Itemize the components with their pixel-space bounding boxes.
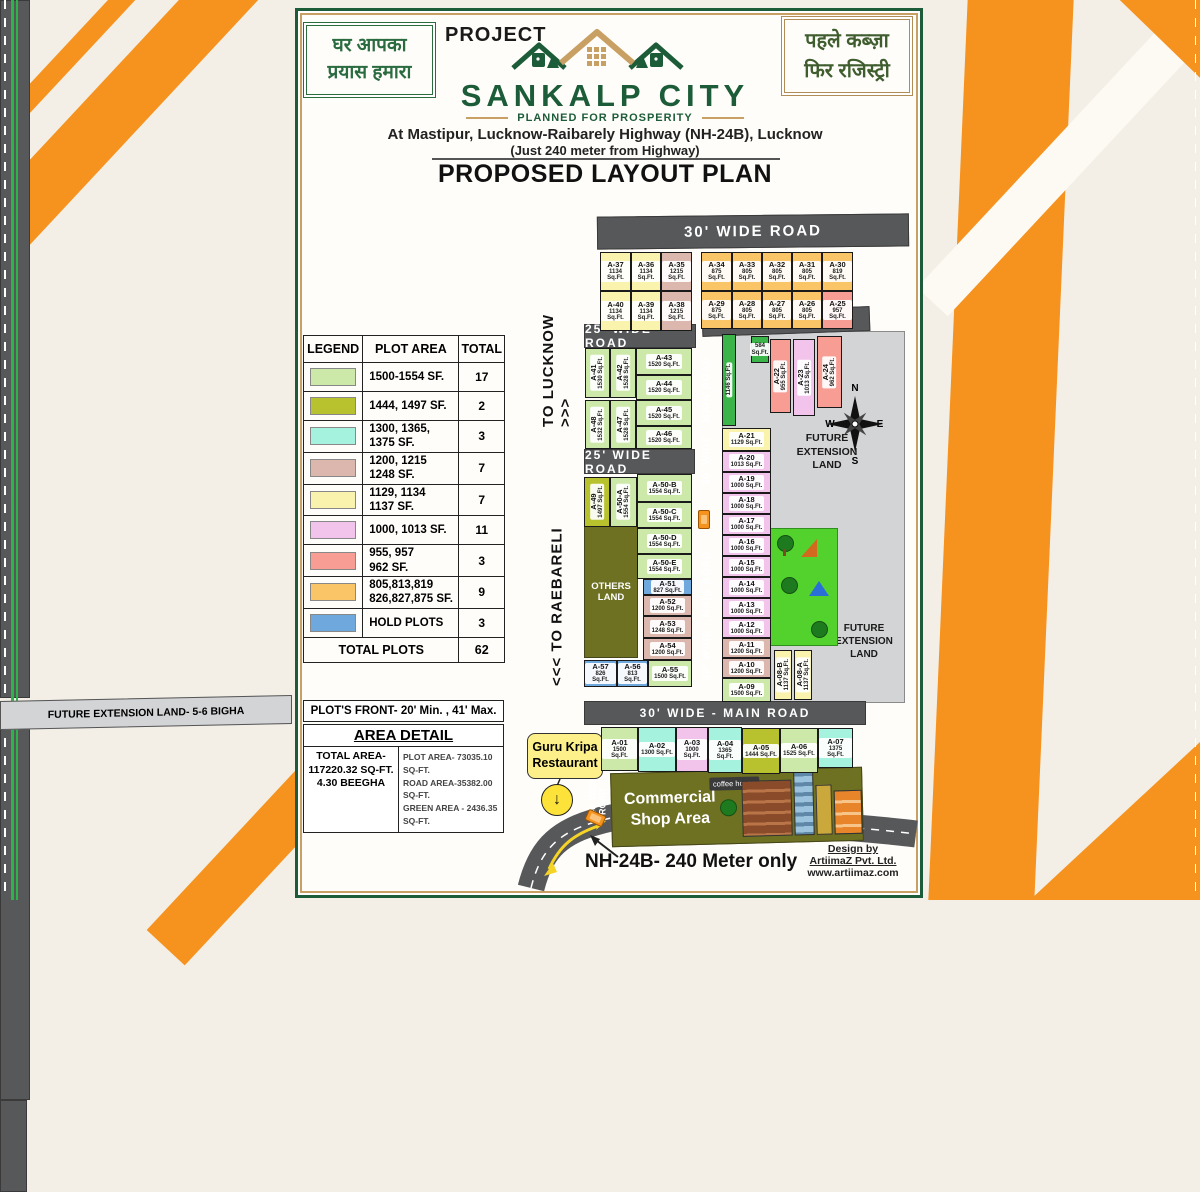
- plot-label: A-451520 Sq.Ft.: [646, 406, 682, 420]
- plot-label: A-29875 Sq.Ft.: [702, 300, 731, 320]
- plot-A-21: A-211129 Sq.Ft.: [722, 428, 771, 451]
- plot-A-43: A-431520 Sq.Ft.: [636, 348, 692, 375]
- plot-A-02: A-021300 Sq.Ft.: [638, 727, 676, 772]
- tree-icon: [781, 577, 798, 594]
- plot-A-47: A-471528 Sq.Ft.: [610, 400, 636, 449]
- median-line: [16, 0, 19, 900]
- median-line: [11, 0, 14, 900]
- plot-label: A-56813 Sq.Ft.: [618, 663, 647, 683]
- road-label: 25' WIDE ROAD: [584, 449, 695, 474]
- nh-distance-text: NH-24B- 240 Meter only: [585, 851, 797, 873]
- plot-label: A-231013 Sq.Ft.: [797, 360, 811, 396]
- plot-label: A-121000 Sq.Ft.: [729, 621, 765, 635]
- plot-A-50-C: A-50-C1554 Sq.Ft.: [637, 502, 692, 528]
- plot-A-38: A-381215 Sq.Ft.: [661, 291, 692, 331]
- plot-A-52: A-521200 Sq.Ft.: [643, 595, 692, 616]
- plot-A-50-E: A-50-E1554 Sq.Ft.: [637, 554, 692, 579]
- to-lucknow-label: TO LUCKNOW >>>: [547, 282, 567, 427]
- plot-label: A-201013 Sq.Ft.: [729, 454, 765, 468]
- car-window: [590, 813, 602, 822]
- plot-A-34: A-34875 Sq.Ft.: [701, 252, 732, 291]
- plot-A-16: A-161000 Sq.Ft.: [722, 535, 771, 556]
- plot-label: A-401134 Sq.Ft.: [601, 301, 630, 321]
- plot-A-03: A-031000 Sq.Ft.: [676, 727, 708, 772]
- plot-label: A-371134 Sq.Ft.: [601, 261, 630, 281]
- plot-label: A-431520 Sq.Ft.: [646, 354, 682, 368]
- plot-A-32: A-32805 Sq.Ft.: [762, 252, 792, 291]
- tree-icon: [811, 621, 828, 638]
- location-marker-icon: ↓: [541, 784, 573, 816]
- plot-label: A-061525 Sq.Ft.: [781, 743, 817, 757]
- plot-label: A-24962 Sq.Ft.: [822, 356, 836, 388]
- plot-label: A-361134 Sq.Ft.: [632, 261, 660, 281]
- plot-label: A-021300 Sq.Ft.: [639, 742, 675, 756]
- plot-label: A-071375 Sq.Ft.: [819, 738, 852, 758]
- plot-A-45: A-451520 Sq.Ft.: [636, 400, 692, 426]
- plot-A-08-B: A-08-B1137 Sq.Ft.: [774, 650, 792, 700]
- plot-A-28: A-28805 Sq.Ft.: [732, 291, 762, 329]
- plot-A-42: A-421528 Sq.Ft.: [610, 348, 636, 398]
- plot-label: A-171000 Sq.Ft.: [729, 517, 765, 531]
- plot-A-15: A-151000 Sq.Ft.: [722, 556, 771, 577]
- plot-A-07: A-071375 Sq.Ft.: [818, 728, 853, 768]
- plot-label: A-481532 Sq.Ft.: [590, 407, 604, 443]
- building-icon: [834, 790, 863, 835]
- plot-A-01: A-011500 Sq.Ft.: [601, 727, 638, 771]
- building-icon: [793, 765, 815, 835]
- plot-label: A-28805 Sq.Ft.: [733, 300, 761, 320]
- plot-label: A-50-D1554 Sq.Ft.: [647, 534, 683, 548]
- plot-A-24: A-24962 Sq.Ft.: [817, 336, 842, 408]
- plot-label: A-421528 Sq.Ft.: [616, 355, 630, 391]
- plot-label: A-441520 Sq.Ft.: [646, 380, 682, 394]
- plot-label: A-161000 Sq.Ft.: [729, 538, 765, 552]
- plot-A-22: A-22955 Sq.Ft.: [770, 339, 791, 413]
- plot-label: A-041365 Sq.Ft.: [709, 740, 741, 760]
- plot-label: A-491497 Sq.Ft.: [590, 484, 604, 520]
- plot-label: A-531248 Sq.Ft.: [650, 620, 686, 634]
- plot-A-25: A-25957 Sq.Ft.: [822, 291, 853, 329]
- green-area-plot: 584 Sq.Ft.: [751, 336, 769, 363]
- plot-label: A-101200 Sq.Ft.: [729, 661, 765, 675]
- plot-label: A-211129 Sq.Ft.: [729, 432, 764, 446]
- slide-icon: [801, 539, 817, 557]
- lane-line: [1195, 0, 1197, 900]
- commercial-label: Commercial Shop Area: [620, 787, 721, 831]
- plot-label: A-50-C1554 Sq.Ft.: [647, 508, 683, 522]
- credit-line-2: ArtiimaZ Pvt. Ltd.: [796, 855, 910, 867]
- plot-A-44: A-441520 Sq.Ft.: [636, 375, 692, 400]
- plot-label: A-51827 Sq.Ft.: [651, 580, 683, 594]
- plot-A-50-A: A-50-A1554 Sq.Ft.: [610, 477, 637, 527]
- plot-A-18: A-181000 Sq.Ft.: [722, 493, 771, 514]
- plot-A-09: A-091500 Sq.Ft.: [722, 678, 771, 702]
- layout-map: TO LUCKNOW >>> <<< TO RAEBARELI FUTURE E…: [0, 0, 1200, 900]
- plot-label: A-031000 Sq.Ft.: [677, 739, 707, 759]
- park-area: [770, 528, 838, 646]
- compass-s: S: [852, 456, 859, 466]
- plot-A-46: A-461520 Sq.Ft.: [636, 426, 692, 449]
- plot-A-10: A-101200 Sq.Ft.: [722, 658, 771, 678]
- plot-label: A-181000 Sq.Ft.: [729, 496, 765, 510]
- plot-label: A-22955 Sq.Ft.: [773, 360, 787, 392]
- plot-A-55: A-551500 Sq.Ft.: [648, 660, 692, 687]
- plot-A-14: A-141000 Sq.Ft.: [722, 577, 771, 598]
- plot-label: A-051444 Sq.Ft.: [743, 744, 779, 758]
- plot-label: A-34875 Sq.Ft.: [702, 261, 731, 281]
- plot-A-53: A-531248 Sq.Ft.: [643, 616, 692, 638]
- plot-A-08-A: A-08-A1137 Sq.Ft.: [794, 650, 812, 700]
- building-icon: [741, 780, 792, 837]
- plot-A-49: A-491497 Sq.Ft.: [584, 477, 610, 527]
- plot-A-35: A-351215 Sq.Ft.: [661, 252, 692, 291]
- plot-label: A-151000 Sq.Ft.: [729, 559, 765, 573]
- plot-A-37: A-371134 Sq.Ft.: [600, 252, 631, 291]
- plot-A-20: A-201013 Sq.Ft.: [722, 451, 771, 472]
- plot-A-33: A-33805 Sq.Ft.: [732, 252, 762, 291]
- lane-line: [4, 0, 6, 900]
- plot-label: A-25957 Sq.Ft.: [823, 300, 852, 320]
- plot-label: A-551500 Sq.Ft.: [652, 666, 688, 680]
- plot-A-12: A-121000 Sq.Ft.: [722, 618, 771, 638]
- plot-label: A-351215 Sq.Ft.: [662, 261, 691, 281]
- plot-label: A-391134 Sq.Ft.: [632, 301, 660, 321]
- plot-A-06: A-061525 Sq.Ft.: [780, 728, 818, 773]
- plot-label: A-541200 Sq.Ft.: [650, 642, 686, 656]
- commercial-shop-area: Commercial Shop Area coffee house: [610, 767, 864, 848]
- green-area-plot: 1146 Sq.Ft.: [722, 334, 736, 426]
- road-label: 30' WIDE - MAIN ROAD: [584, 701, 866, 725]
- plot-label: A-50-E1554 Sq.Ft.: [647, 559, 683, 573]
- plot-A-27: A-27805 Sq.Ft.: [762, 291, 792, 329]
- tree-icon: [720, 799, 737, 816]
- plot-A-48: A-481532 Sq.Ft.: [585, 400, 610, 449]
- plot-label: A-27805 Sq.Ft.: [763, 300, 791, 320]
- others-land-block: OTHERS LAND: [584, 526, 638, 658]
- tree-trunk: [783, 549, 786, 556]
- plot-label: 584 Sq.Ft.: [750, 343, 771, 356]
- restaurant-callout: Guru Kripa Restaurant: [527, 733, 603, 779]
- plot-label: A-50-B1554 Sq.Ft.: [647, 481, 683, 495]
- plot-label: A-08-A1137 Sq.Ft.: [796, 657, 810, 692]
- credit-line-3: www.artiimaz.com: [796, 867, 910, 879]
- plot-A-54: A-541200 Sq.Ft.: [643, 638, 692, 660]
- plot-label: A-26805 Sq.Ft.: [793, 300, 821, 320]
- plot-label: A-32805 Sq.Ft.: [763, 261, 791, 281]
- plot-A-56: A-56813 Sq.Ft.: [617, 660, 648, 687]
- plot-label: A-191000 Sq.Ft.: [729, 475, 765, 489]
- main-road-label: 30' WIDE - MAIN ROAD: [697, 540, 717, 690]
- plot-A-40: A-401134 Sq.Ft.: [600, 291, 631, 331]
- to-raebareli-label: <<< TO RAEBARELI: [547, 512, 567, 702]
- credit-line-1: Design by: [796, 843, 910, 855]
- plot-A-13: A-131000 Sq.Ft.: [722, 598, 771, 618]
- car-window: [701, 515, 707, 525]
- plot-label: A-50-A1554 Sq.Ft.: [616, 484, 630, 520]
- plot-A-05: A-051444 Sq.Ft.: [742, 728, 780, 774]
- plot-label: A-411530 Sq.Ft.: [590, 355, 604, 391]
- plot-A-57: A-57826 Sq.Ft.: [584, 660, 617, 687]
- plot-label: A-33805 Sq.Ft.: [733, 261, 761, 281]
- plot-A-51: A-51827 Sq.Ft.: [643, 579, 692, 595]
- entry-road: [0, 1100, 27, 1192]
- plot-A-50-B: A-50-B1554 Sq.Ft.: [637, 474, 692, 502]
- building-icon: [815, 785, 832, 835]
- plot-A-19: A-191000 Sq.Ft.: [722, 472, 771, 493]
- plot-A-36: A-361134 Sq.Ft.: [631, 252, 661, 291]
- compass-n: N: [851, 383, 858, 394]
- plot-A-50-D: A-50-D1554 Sq.Ft.: [637, 528, 692, 554]
- plot-label: A-57826 Sq.Ft.: [585, 663, 616, 683]
- plot-label: A-521200 Sq.Ft.: [650, 598, 686, 612]
- plot-label: A-08-B1137 Sq.Ft.: [776, 657, 790, 692]
- plot-label: A-30819 Sq.Ft.: [823, 261, 852, 281]
- plot-label: A-461520 Sq.Ft.: [646, 430, 682, 444]
- plot-label: A-141000 Sq.Ft.: [729, 580, 765, 594]
- plot-A-26: A-26805 Sq.Ft.: [792, 291, 822, 329]
- plot-A-41: A-411530 Sq.Ft.: [585, 348, 610, 398]
- plot-label: A-381215 Sq.Ft.: [662, 301, 691, 321]
- plot-A-39: A-391134 Sq.Ft.: [631, 291, 661, 331]
- plot-A-29: A-29875 Sq.Ft.: [701, 291, 732, 329]
- plot-A-30: A-30819 Sq.Ft.: [822, 252, 853, 291]
- plot-A-23: A-231013 Sq.Ft.: [793, 339, 815, 416]
- plot-label: A-011500 Sq.Ft.: [602, 739, 637, 759]
- plot-label: A-31805 Sq.Ft.: [793, 261, 821, 281]
- plot-A-17: A-171000 Sq.Ft.: [722, 514, 771, 535]
- plot-A-04: A-041365 Sq.Ft.: [708, 727, 742, 773]
- plot-A-11: A-111200 Sq.Ft.: [722, 638, 771, 658]
- design-credit: Design by ArtiimaZ Pvt. Ltd. www.artiima…: [796, 843, 910, 879]
- tent-icon: [809, 581, 829, 596]
- car-icon: [698, 510, 710, 529]
- plot-label: A-131000 Sq.Ft.: [729, 601, 765, 615]
- road-label: 30' WIDE ROAD: [597, 213, 909, 249]
- future-extension-top-band: FUTURE EXTENSION LAND- 5-6 BIGHA: [0, 695, 292, 730]
- plot-label: A-471528 Sq.Ft.: [616, 407, 630, 443]
- plot-label: A-111200 Sq.Ft.: [729, 641, 765, 655]
- plot-label: A-091500 Sq.Ft.: [729, 683, 765, 697]
- main-road-label: 30' WIDE - MAIN ROAD: [697, 348, 717, 493]
- plot-A-31: A-31805 Sq.Ft.: [792, 252, 822, 291]
- plot-label: 1146 Sq.Ft.: [726, 362, 732, 397]
